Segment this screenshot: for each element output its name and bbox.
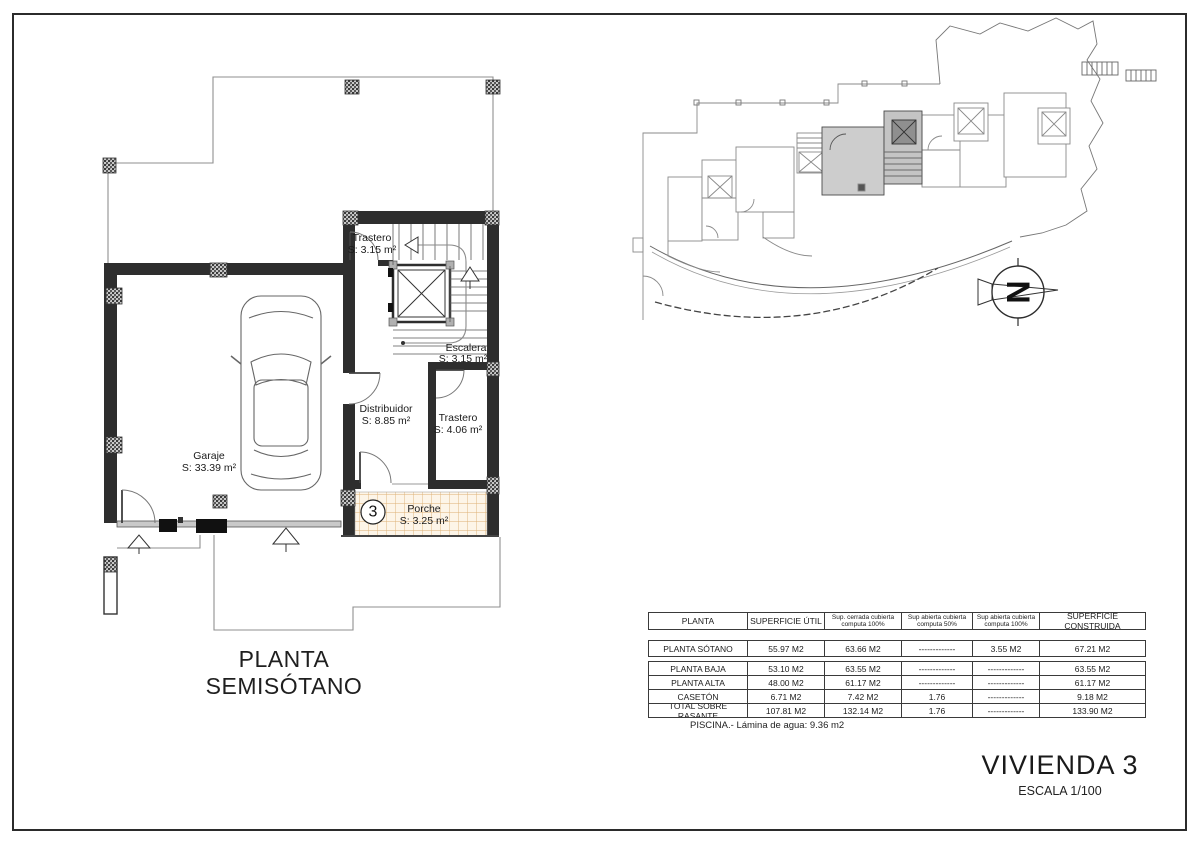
room-label-trastero-2: Trastero [439, 412, 478, 424]
header-superficie-util: SUPERFICIE ÚTIL [747, 613, 824, 629]
stair-up-arrow [461, 267, 479, 289]
header-sup-abierta-50: Sup abierta cubierta computa 50% [901, 613, 972, 629]
walls [104, 211, 499, 537]
project-title: VIVIENDA 3 [948, 750, 1172, 781]
title-block: VIVIENDA 3 ESCALA 1/100 [948, 750, 1172, 798]
table-row-baja: PLANTA BAJA 53.10 M2 63.55 M2 ----------… [649, 662, 1145, 675]
floor-plan: Trastero S: 3.15 m² Escalera S: 3.15 m² … [103, 77, 500, 630]
boundary-ticks [694, 81, 907, 105]
room-label-distribuidor: Distribuidor [359, 403, 413, 415]
table-row-sotano: PLANTA SÓTANO 55.97 M2 63.66 M2 --------… [648, 640, 1146, 657]
header-sup-abierta-100: Sup abierta cubierta computa 100% [972, 613, 1039, 629]
room-area-porche: S: 3.25 m² [400, 515, 449, 527]
pool-note: PISCINA.- Lámina de agua: 9.36 m2 [690, 720, 844, 731]
unit-number-badge: 3 [361, 500, 385, 524]
room-area-trastero-1: S: 3.15 m² [348, 244, 397, 256]
north-arrow: N [978, 258, 1058, 326]
floor-plan-title: PLANTA SEMISÓTANO [169, 646, 399, 700]
elevator [388, 261, 454, 326]
exterior-stairs [1082, 62, 1156, 81]
stair-direction-arrow [405, 237, 418, 253]
header-sup-cerrada: Sup. cerrada cubierta computa 100% [824, 613, 901, 629]
site-plan [633, 18, 1156, 320]
room-area-trastero-2: S: 4.06 m² [434, 424, 483, 436]
site-unit-1 [668, 160, 738, 241]
garden-walls [668, 237, 812, 272]
drawing-sheet: Trastero S: 3.15 m² Escalera S: 3.15 m² … [0, 0, 1200, 843]
areas-table-header: PLANTA SUPERFICIE ÚTIL Sup. cerrada cubi… [648, 612, 1146, 630]
table-row-total: TOTAL SOBRE RASANTE 107.81 M2 132.14 M2 … [649, 703, 1145, 717]
room-label-porche: Porche [407, 503, 440, 515]
stair-guide-start [401, 341, 405, 345]
site-unit-4 [922, 103, 1006, 187]
site-unit-2 [736, 133, 825, 238]
header-planta: PLANTA [649, 613, 747, 629]
road-edge-1 [650, 241, 1012, 288]
plot-edge-dashed [655, 268, 938, 317]
table-row-alta: PLANTA ALTA 48.00 M2 61.17 M2 ----------… [649, 675, 1145, 689]
room-area-escalera: S: 3.15 m² [439, 353, 488, 365]
header-superficie-construida: SUPERFICIE CONSTRUIDA [1039, 613, 1145, 629]
room-area-garaje: S: 33.39 m² [182, 462, 237, 474]
scale-label: ESCALA 1/100 [948, 784, 1172, 798]
north-letter: N [1000, 280, 1036, 303]
site-left-step [633, 238, 643, 252]
room-label-garaje: Garaje [193, 450, 225, 462]
garage-door [117, 517, 341, 533]
unit-number: 3 [369, 504, 378, 521]
site-unit-5 [1004, 93, 1070, 177]
table-row-caseton: CASETÓN 6.71 M2 7.42 M2 1.76 -----------… [649, 689, 1145, 703]
site-unit-3-highlighted [822, 111, 922, 195]
room-area-distribuidor: S: 8.85 m² [362, 415, 411, 427]
car-top-view [231, 296, 331, 490]
site-left-edge [643, 233, 663, 320]
room-label-trastero-1: Trastero [353, 232, 392, 244]
areas-table-body: PLANTA BAJA 53.10 M2 63.55 M2 ----------… [648, 661, 1146, 718]
